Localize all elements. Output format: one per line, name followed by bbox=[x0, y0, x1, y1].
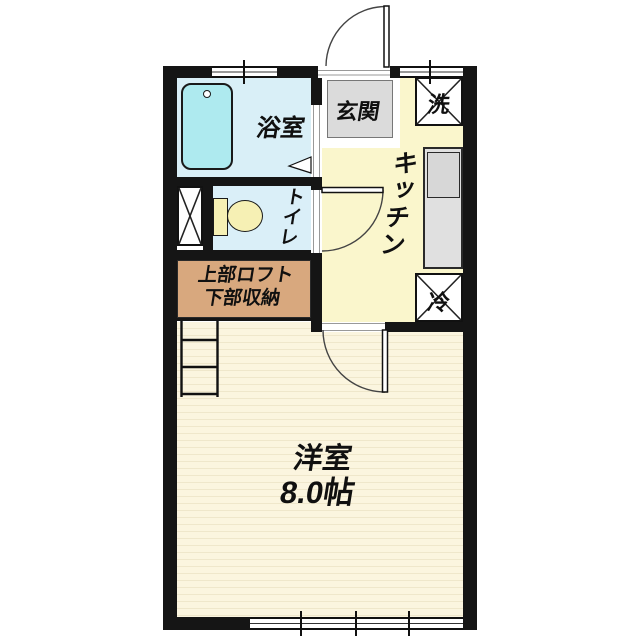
western-room-area: 8.0帖 bbox=[172, 476, 463, 510]
closet-label: 上部ロフト 下部収納 bbox=[173, 264, 314, 310]
entrance-door-swing bbox=[318, 6, 390, 75]
entrance-label: 玄関 bbox=[295, 94, 420, 126]
laundry-label: 洗 bbox=[406, 87, 471, 119]
refrigerator-label: 冷 bbox=[406, 285, 471, 317]
pipe-space-x-icon bbox=[179, 188, 201, 244]
loft-ladder bbox=[182, 321, 218, 397]
floor-plan: 浴室 玄関 洗 キッチン 冷 トイレ 上部ロフト 下部収納 洋室 8.0帖 bbox=[0, 0, 640, 639]
western-room-label: 洋室 8.0帖 bbox=[172, 442, 469, 510]
western-room-name: 洋室 bbox=[177, 442, 468, 476]
closet-label-line2: 下部収納 bbox=[173, 287, 311, 310]
room-door-swing bbox=[322, 324, 388, 393]
window-detail-lines bbox=[212, 60, 463, 636]
closet-label-line1: 上部ロフト bbox=[177, 264, 315, 287]
